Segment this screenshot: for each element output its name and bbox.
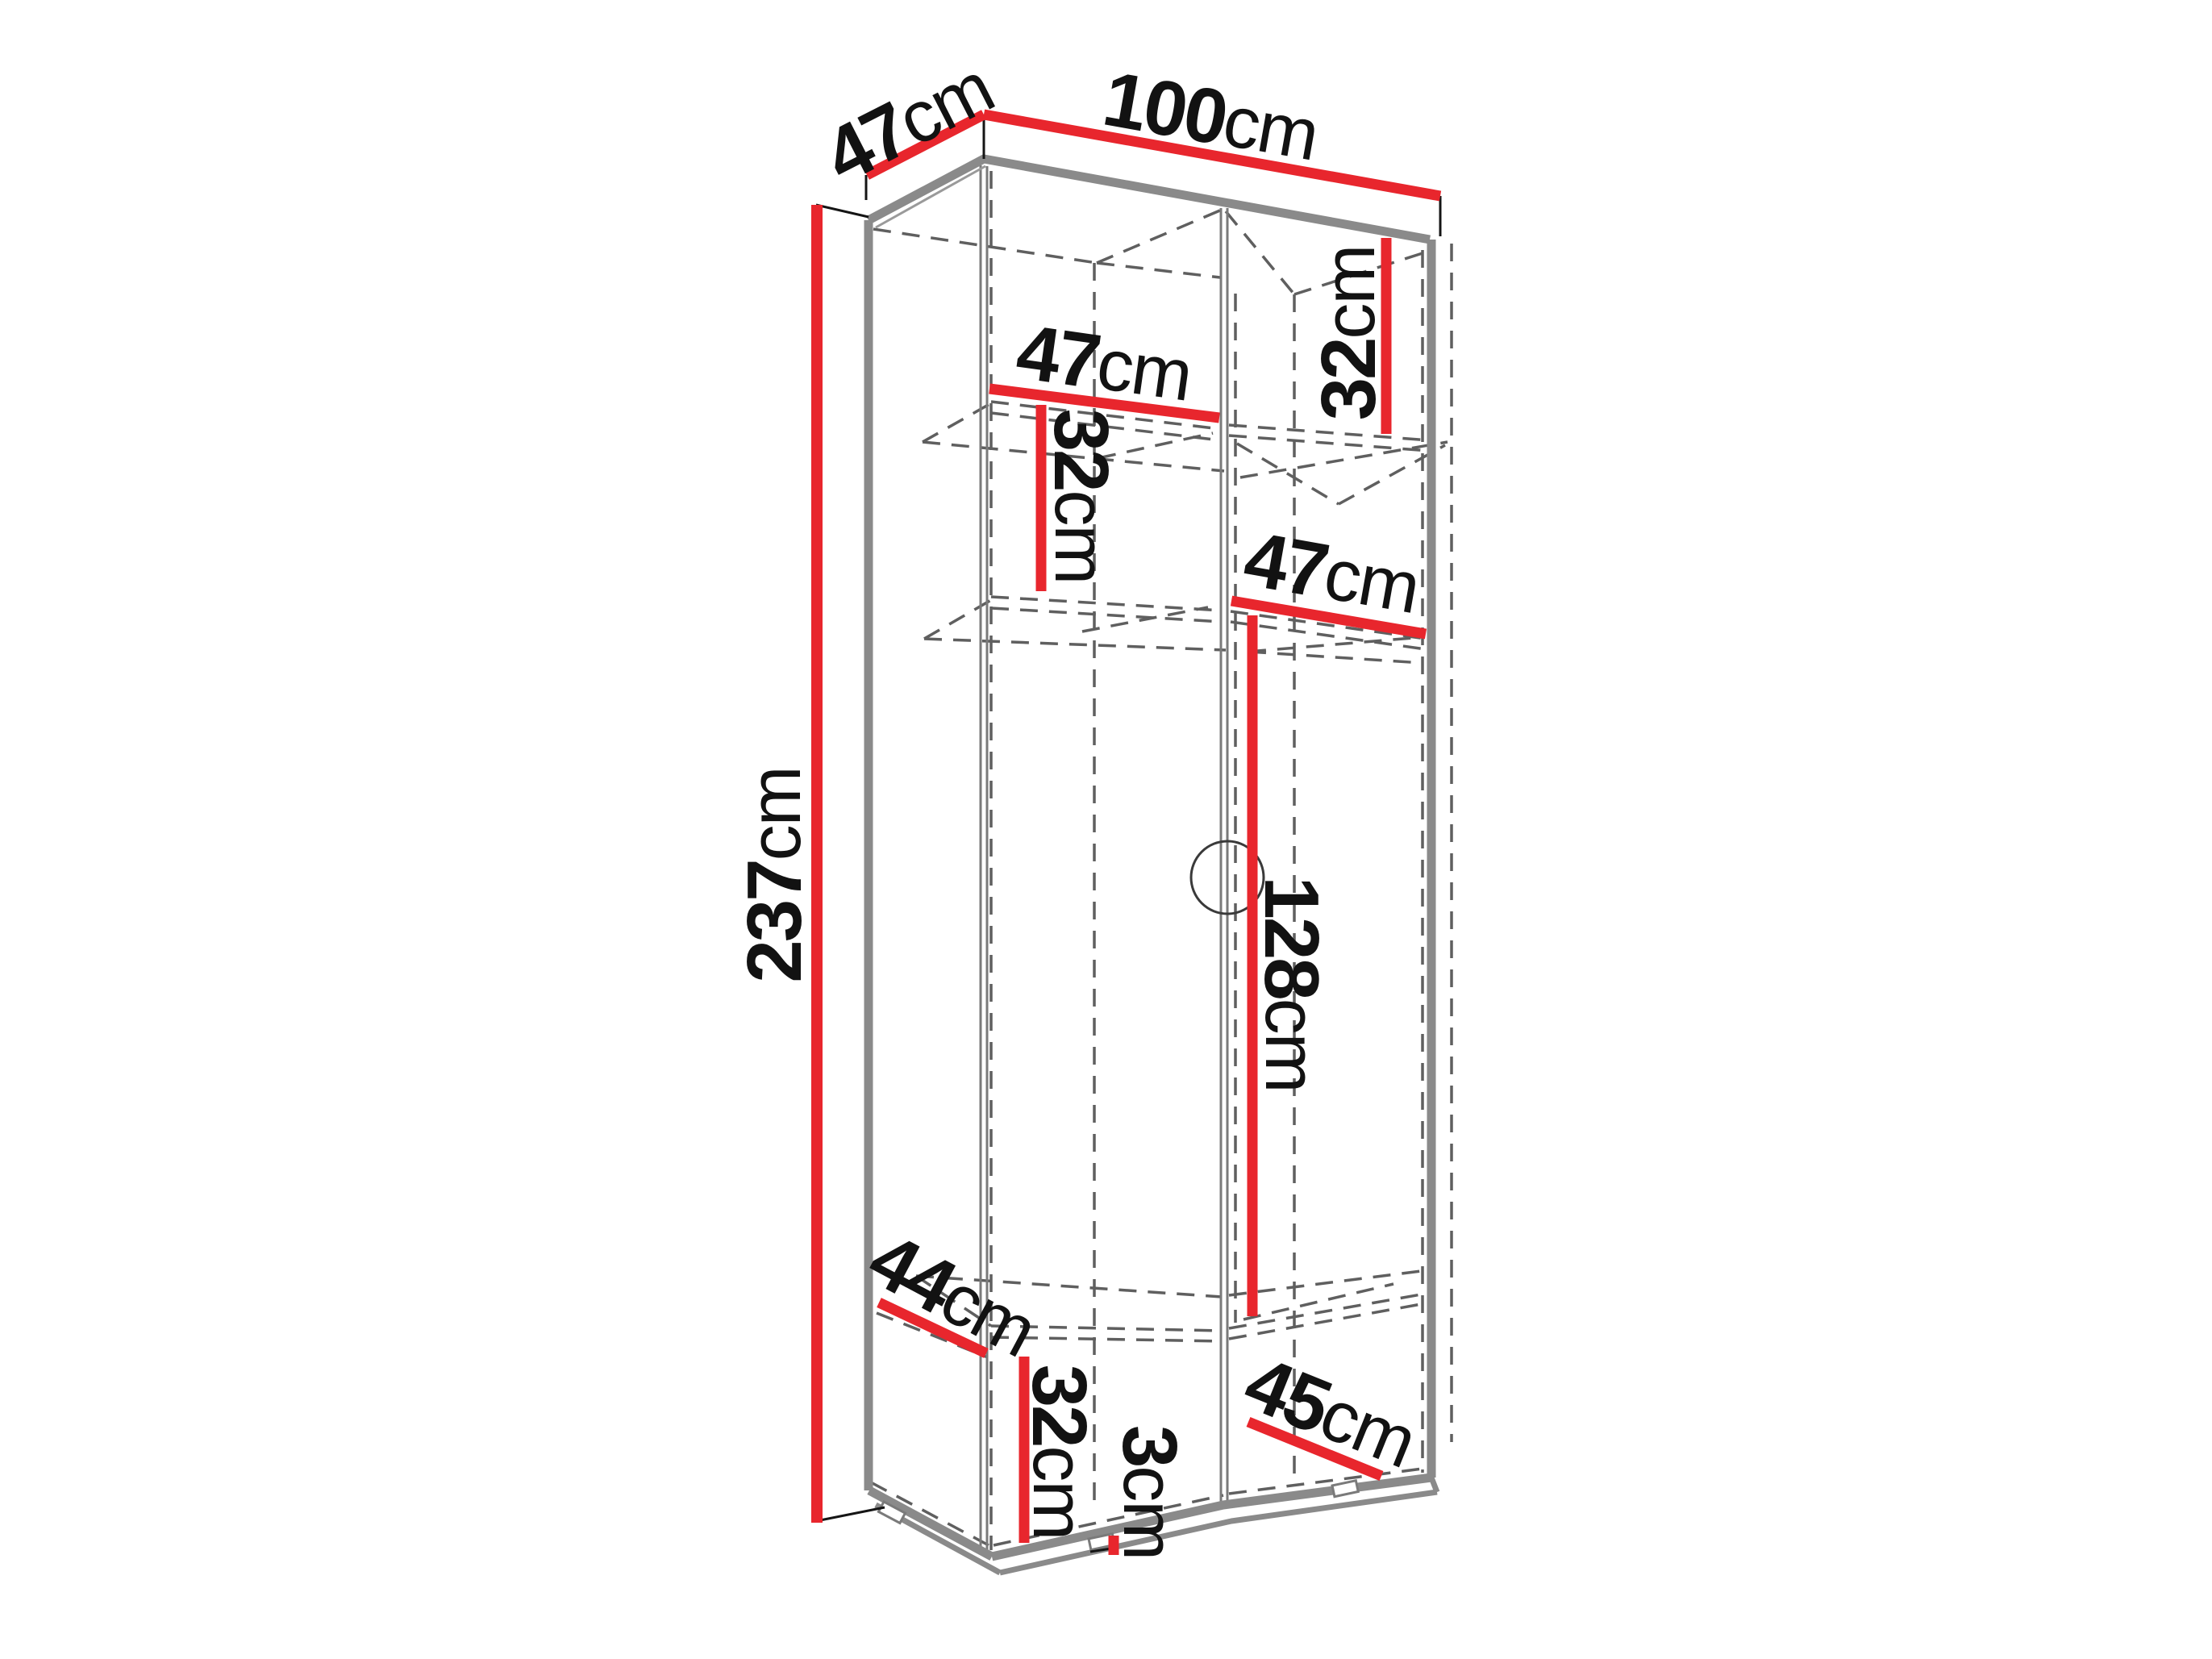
dim-label-plinth-height: 3cm [1106,1425,1193,1559]
dim-label-total-height: 237cm [731,767,818,982]
diagram-background [0,0,2212,1659]
dim-label-bottom-section-height: 32cm [1016,1365,1102,1540]
wardrobe-dimension-diagram: 47cm 100cm 237cm 47cm 32cm 32cm 47cm 128… [0,0,2212,1659]
dim-label-upper-right-section-height: 32cm [1306,246,1392,421]
dim-label-left-shelf-spacing: 32cm [1038,409,1124,584]
page: 47cm 100cm 237cm 47cm 32cm 32cm 47cm 128… [0,0,2212,1659]
dim-label-hanging-section-height: 128cm [1248,876,1335,1091]
